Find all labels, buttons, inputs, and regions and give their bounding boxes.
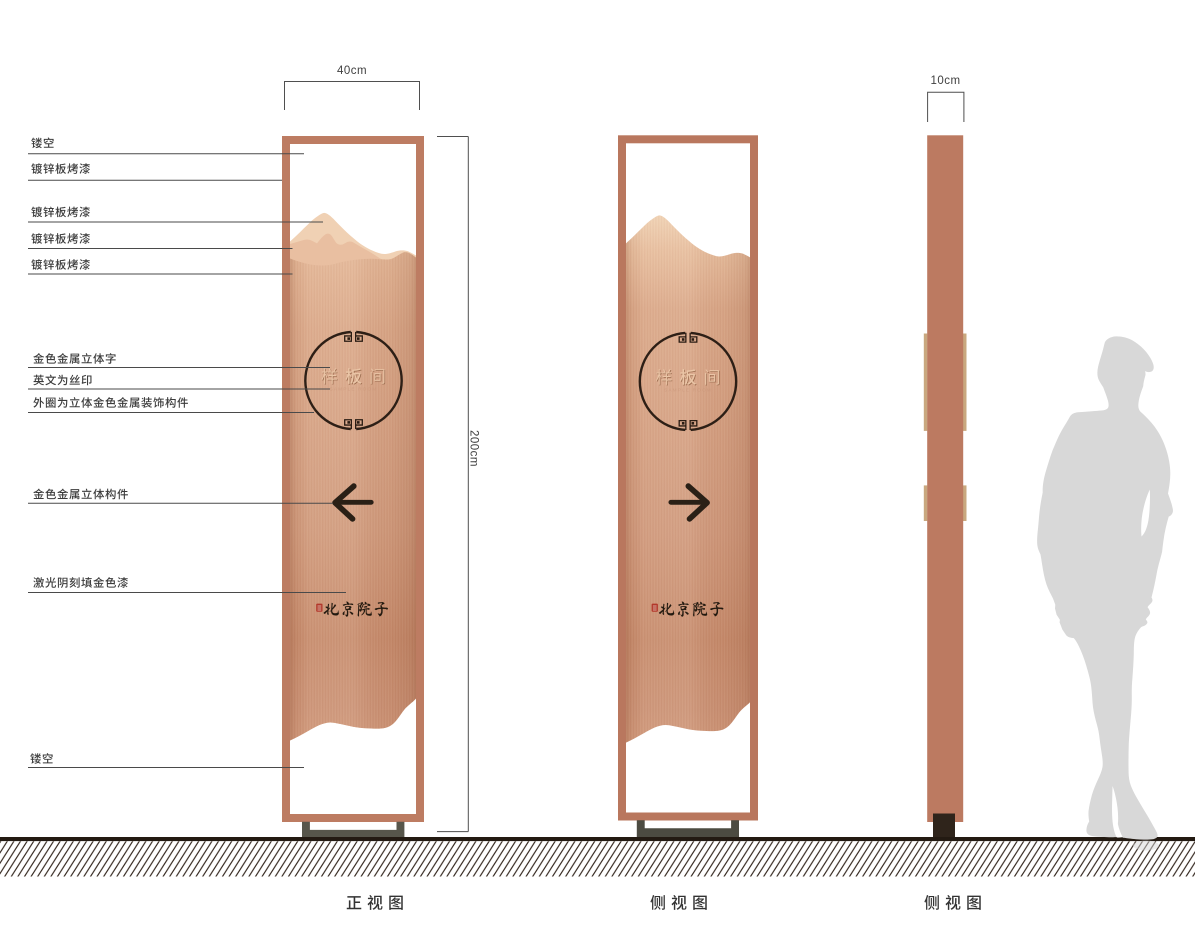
svg-text:200cm: 200cm — [468, 430, 480, 467]
svg-text:10cm: 10cm — [930, 75, 960, 87]
svg-text:40cm: 40cm — [337, 65, 367, 77]
svg-text:SAMPLE ROOM: SAMPLE ROOM — [664, 387, 712, 393]
svg-text:SAMPLE ROOM: SAMPLE ROOM — [330, 387, 378, 393]
